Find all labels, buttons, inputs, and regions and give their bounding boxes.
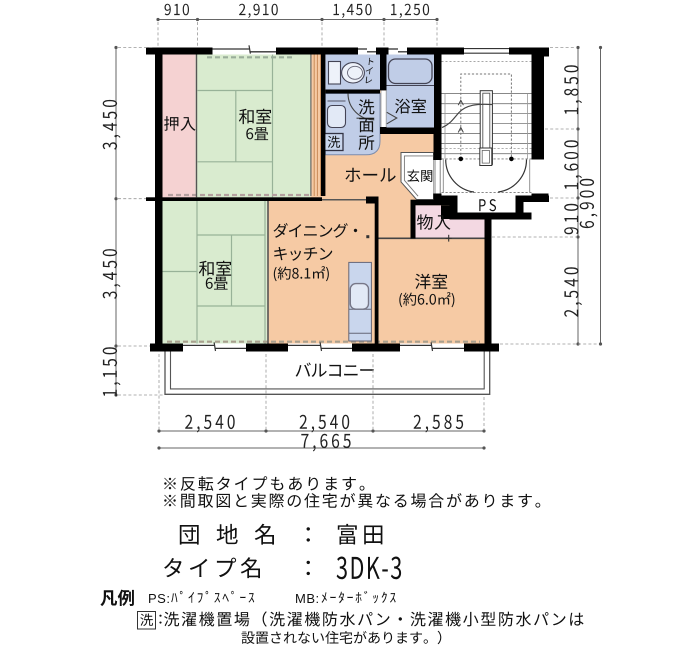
svg-text:PS:: PS:: [148, 591, 170, 606]
svg-text:MB:: MB:: [295, 591, 320, 606]
